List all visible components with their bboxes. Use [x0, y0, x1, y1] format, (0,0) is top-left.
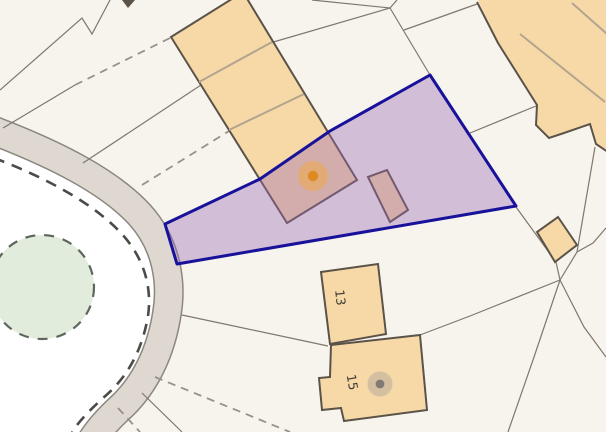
marker-dot	[308, 171, 318, 181]
building-13[interactable]	[321, 264, 386, 344]
map-viewport[interactable]: 13 15	[0, 0, 606, 432]
building-15-marker[interactable]	[368, 372, 393, 397]
green-island	[0, 235, 94, 339]
selected-building-marker[interactable]	[298, 161, 328, 191]
building-13-label: 13	[332, 289, 349, 306]
building-15-label: 15	[344, 373, 362, 391]
map-canvas: 13 15	[0, 0, 606, 432]
marker-dot	[376, 380, 385, 389]
